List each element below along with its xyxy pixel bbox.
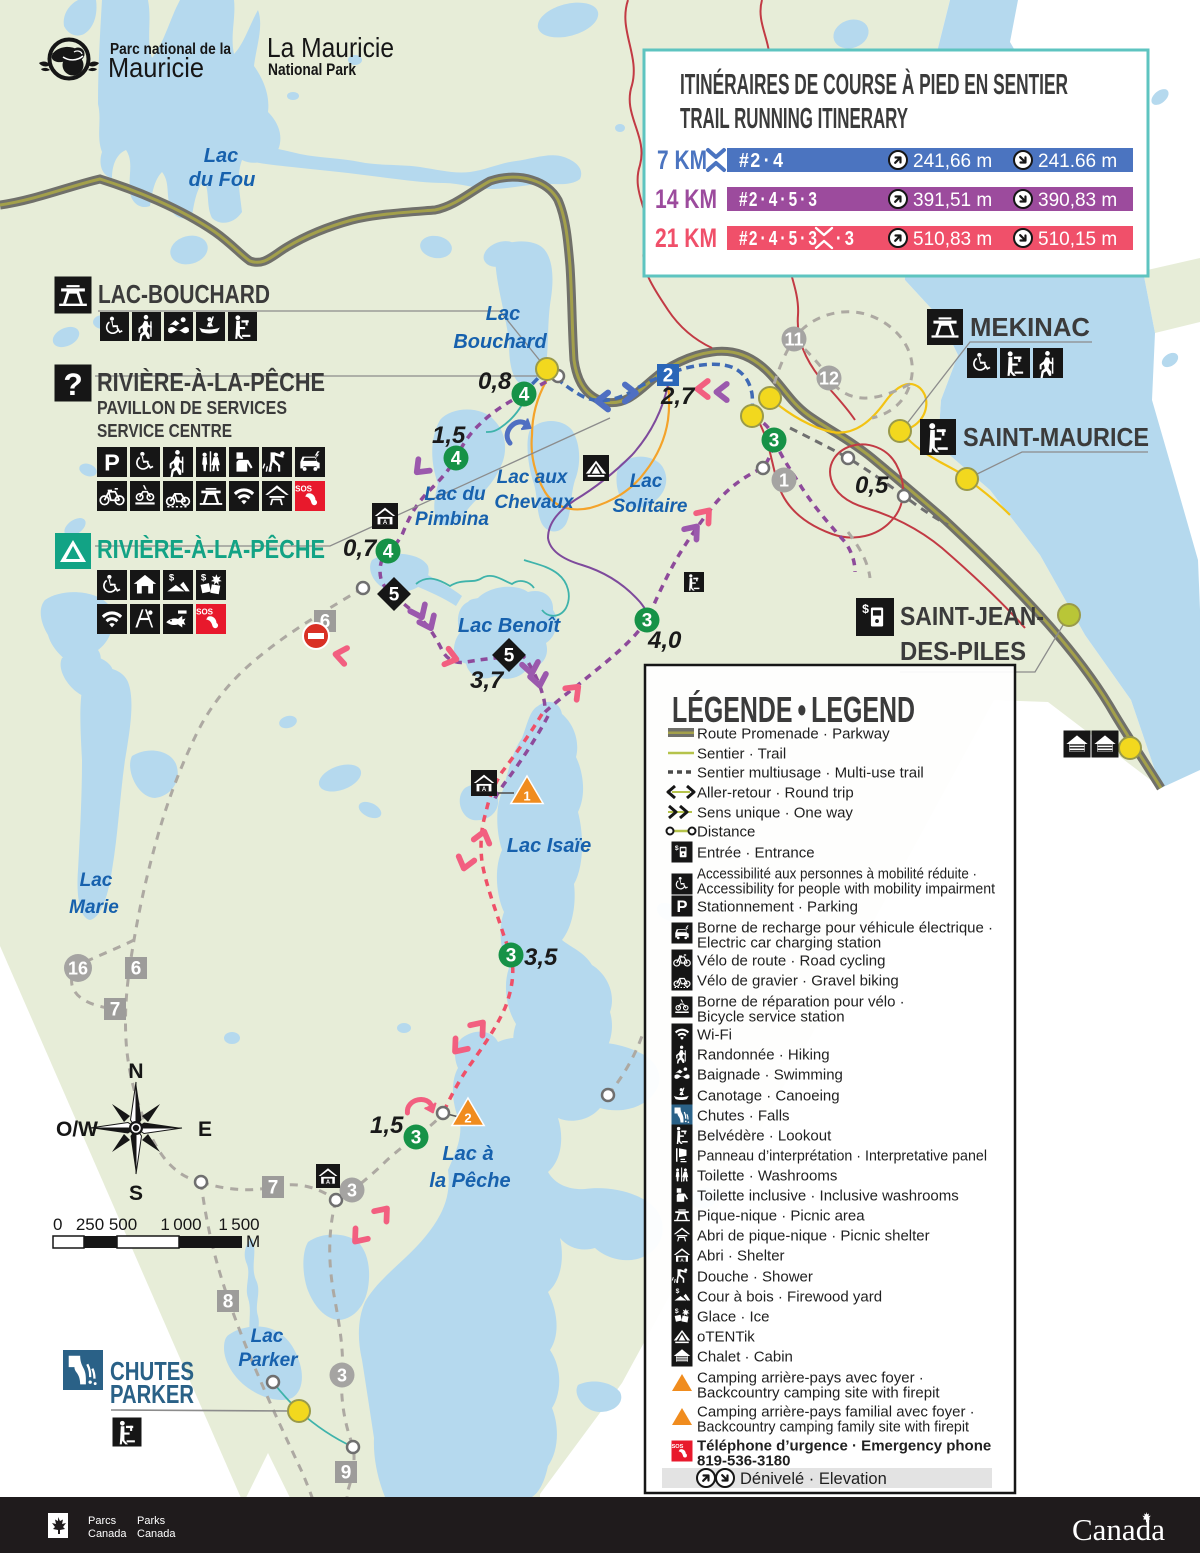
- svg-text:Dénivelé · Elevation: Dénivelé · Elevation: [740, 1470, 887, 1488]
- svg-text:Lac: Lac: [630, 471, 663, 492]
- svg-text:Sentier · Trail: Sentier · Trail: [697, 746, 786, 763]
- svg-text:La Mauricie: La Mauricie: [267, 32, 394, 63]
- svg-text:PAVILLON DE SERVICES: PAVILLON DE SERVICES: [97, 398, 287, 418]
- svg-text:Marie: Marie: [69, 897, 119, 918]
- svg-text:Canada: Canada: [88, 1528, 127, 1540]
- svg-text:510,83 m: 510,83 m: [913, 229, 992, 250]
- svg-text:Abri de pique-nique · Picnic s: Abri de pique-nique · Picnic shelter: [697, 1228, 930, 1245]
- svg-text:3: 3: [337, 1366, 347, 1386]
- svg-text:819-536-3180: 819-536-3180: [697, 1453, 790, 1470]
- svg-text:SAINT-JEAN-: SAINT-JEAN-: [900, 601, 1044, 631]
- svg-text:S: S: [129, 1182, 143, 1205]
- svg-text:DES-PILES: DES-PILES: [900, 636, 1026, 666]
- svg-text:16: 16: [68, 959, 88, 979]
- svg-text:7 KM: 7 KM: [657, 145, 707, 175]
- svg-text:0: 0: [53, 1215, 62, 1234]
- svg-text:0,7: 0,7: [343, 535, 378, 562]
- svg-text:4: 4: [383, 542, 394, 563]
- svg-text:4: 4: [451, 449, 462, 470]
- svg-text:Lac aux: Lac aux: [497, 467, 569, 488]
- svg-text:0,5: 0,5: [855, 472, 889, 499]
- svg-text:Entrée · Entrance: Entrée · Entrance: [697, 845, 815, 862]
- svg-text:· 3: · 3: [836, 228, 854, 250]
- svg-text:5: 5: [389, 585, 400, 606]
- svg-text:E: E: [198, 1118, 212, 1141]
- svg-text:Canada: Canada: [137, 1528, 176, 1540]
- svg-text:O/W: O/W: [56, 1118, 98, 1141]
- svg-text:3,7: 3,7: [470, 667, 505, 694]
- svg-text:Chutes · Falls: Chutes · Falls: [697, 1108, 790, 1125]
- svg-text:SAINT-MAURICE: SAINT-MAURICE: [963, 422, 1149, 452]
- svg-text:11: 11: [784, 330, 803, 350]
- svg-text:Lac à: Lac à: [442, 1143, 493, 1165]
- svg-text:4: 4: [519, 385, 530, 406]
- svg-text:Route Promenade · Parkway: Route Promenade · Parkway: [697, 726, 890, 743]
- svg-text:12: 12: [819, 369, 839, 389]
- svg-text:National Park: National Park: [268, 60, 356, 79]
- svg-text:3: 3: [411, 1128, 422, 1149]
- svg-text:Parker: Parker: [238, 1350, 299, 1371]
- svg-text:Parcs: Parcs: [88, 1515, 117, 1527]
- svg-text:Sens unique · One way: Sens unique · One way: [697, 805, 853, 822]
- svg-text:14 KM: 14 KM: [655, 184, 717, 214]
- svg-text:Lac Benoît: Lac Benoît: [458, 615, 562, 637]
- svg-text:6: 6: [131, 959, 142, 980]
- svg-text:Mauricie: Mauricie: [108, 52, 204, 83]
- svg-text:Parks: Parks: [137, 1515, 166, 1527]
- svg-text:# 2 · 4: # 2 · 4: [739, 150, 784, 172]
- svg-text:4,0: 4,0: [647, 627, 682, 654]
- svg-text:2: 2: [464, 1111, 471, 1126]
- svg-text:1 000: 1 000: [160, 1215, 201, 1234]
- svg-text:Wi-Fi: Wi-Fi: [697, 1027, 732, 1044]
- svg-text:1,5: 1,5: [370, 1112, 404, 1139]
- svg-text:0,8: 0,8: [478, 368, 512, 395]
- svg-text:9: 9: [341, 1463, 352, 1484]
- svg-text:7: 7: [110, 1000, 121, 1021]
- svg-text:LÉGENDE • LEGEND: LÉGENDE • LEGEND: [672, 689, 915, 730]
- svg-text:Bouchard: Bouchard: [453, 331, 547, 353]
- svg-text:3: 3: [506, 946, 517, 967]
- svg-text:N: N: [128, 1060, 143, 1083]
- svg-text:TRAIL RUNNING ITINERARY: TRAIL RUNNING ITINERARY: [680, 103, 908, 135]
- svg-text:Pique-nique · Picnic area: Pique-nique · Picnic area: [697, 1208, 865, 1225]
- svg-text:Backcountry camping family sit: Backcountry camping family site with fir…: [697, 1419, 970, 1436]
- svg-text:# 2 · 4 · 5 · 3: # 2 · 4 · 5 · 3: [739, 189, 817, 211]
- svg-text:ITINÉRAIRES DE COURSE À PIED E: ITINÉRAIRES DE COURSE À PIED EN SENTIER: [680, 67, 1068, 101]
- svg-text:Belvédère · Lookout: Belvédère · Lookout: [697, 1128, 832, 1145]
- svg-text:21 KM: 21 KM: [655, 223, 717, 253]
- svg-text:Bicycle service station: Bicycle service station: [697, 1009, 845, 1026]
- svg-text:Chalet · Cabin: Chalet · Cabin: [697, 1349, 793, 1366]
- svg-text:Randonnée · Hiking: Randonnée · Hiking: [697, 1047, 830, 1064]
- svg-text:Toilette inclusive · Inclusive: Toilette inclusive · Inclusive washrooms: [697, 1188, 959, 1205]
- svg-text:Solitaire: Solitaire: [613, 496, 688, 517]
- svg-text:Canada: Canada: [1072, 1512, 1165, 1547]
- svg-text:Stationnement · Parking: Stationnement · Parking: [697, 899, 858, 916]
- svg-text:1: 1: [779, 471, 789, 491]
- svg-text:Chevaux: Chevaux: [494, 492, 575, 513]
- svg-text:Lac du: Lac du: [424, 484, 486, 505]
- svg-text:Lac Isaïe: Lac Isaïe: [507, 835, 592, 857]
- svg-text:RIVIÈRE-À-LA-PÊCHE: RIVIÈRE-À-LA-PÊCHE: [97, 534, 325, 564]
- svg-text:2,7: 2,7: [660, 383, 696, 410]
- svg-text:5: 5: [504, 646, 515, 667]
- svg-text:PARKER: PARKER: [110, 1379, 194, 1409]
- svg-text:250: 250: [76, 1215, 104, 1234]
- svg-text:Backcountry camping site with: Backcountry camping site with firepit: [697, 1385, 940, 1402]
- svg-text:1: 1: [523, 789, 530, 804]
- svg-text:RIVIÈRE-À-LA-PÊCHE: RIVIÈRE-À-LA-PÊCHE: [97, 367, 325, 397]
- svg-text:LAC-BOUCHARD: LAC-BOUCHARD: [98, 279, 270, 309]
- svg-text:oTENTik: oTENTik: [697, 1329, 755, 1346]
- svg-text:1,5: 1,5: [432, 422, 466, 449]
- svg-text:du Fou: du Fou: [189, 169, 256, 191]
- svg-text:Abri · Shelter: Abri · Shelter: [697, 1248, 785, 1265]
- svg-text:Lac: Lac: [486, 303, 520, 325]
- svg-text:Electric car charging station: Electric car charging station: [697, 935, 881, 952]
- svg-text:Pimbina: Pimbina: [415, 509, 489, 530]
- svg-text:Douche · Shower: Douche · Shower: [697, 1269, 813, 1286]
- svg-text:la Pêche: la Pêche: [429, 1170, 510, 1192]
- svg-text:391,51 m: 391,51 m: [913, 190, 992, 211]
- svg-text:Vélo de route · Road cycling: Vélo de route · Road cycling: [697, 953, 885, 970]
- svg-text:3: 3: [769, 431, 780, 452]
- svg-text:241,66 m: 241,66 m: [913, 151, 992, 172]
- svg-text:Toilette · Washrooms: Toilette · Washrooms: [697, 1168, 837, 1185]
- svg-text:SERVICE CENTRE: SERVICE CENTRE: [97, 421, 232, 441]
- svg-text:Sentier multiusage · Multi-use: Sentier multiusage · Multi-use trail: [697, 765, 924, 782]
- svg-text:M: M: [246, 1232, 260, 1251]
- svg-text:390,83 m: 390,83 m: [1038, 190, 1117, 211]
- svg-text:510,15 m: 510,15 m: [1038, 229, 1117, 250]
- svg-text:Vélo de gravier · Gravel bikin: Vélo de gravier · Gravel biking: [697, 973, 899, 990]
- svg-text:Lac: Lac: [80, 870, 113, 891]
- svg-text:7: 7: [268, 1178, 279, 1199]
- svg-text:Lac: Lac: [204, 145, 238, 167]
- svg-text:# 2 · 4 · 5 · 3: # 2 · 4 · 5 · 3: [739, 228, 817, 250]
- svg-text:Canotage · Canoeing: Canotage · Canoeing: [697, 1088, 840, 1105]
- svg-text:Lac: Lac: [251, 1326, 284, 1347]
- svg-text:Cour à bois · Firewood yard: Cour à bois · Firewood yard: [697, 1289, 882, 1306]
- svg-text:3,5: 3,5: [524, 944, 558, 971]
- svg-text:Baignade · Swimming: Baignade · Swimming: [697, 1067, 843, 1084]
- svg-text:Accessibility for people with: Accessibility for people with mobility i…: [697, 881, 996, 898]
- svg-text:241.66 m: 241.66 m: [1038, 151, 1117, 172]
- svg-text:Glace · Ice: Glace · Ice: [697, 1309, 770, 1326]
- svg-text:500: 500: [109, 1215, 137, 1234]
- svg-text:Panneau d’interprétation · Int: Panneau d’interprétation · Interpretativ…: [697, 1148, 987, 1165]
- svg-text:Distance: Distance: [697, 824, 755, 841]
- svg-text:8: 8: [223, 1292, 234, 1313]
- svg-text:MEKINAC: MEKINAC: [970, 312, 1090, 342]
- svg-text:Aller-retour · Round trip: Aller-retour · Round trip: [697, 785, 854, 802]
- svg-text:3: 3: [347, 1181, 357, 1201]
